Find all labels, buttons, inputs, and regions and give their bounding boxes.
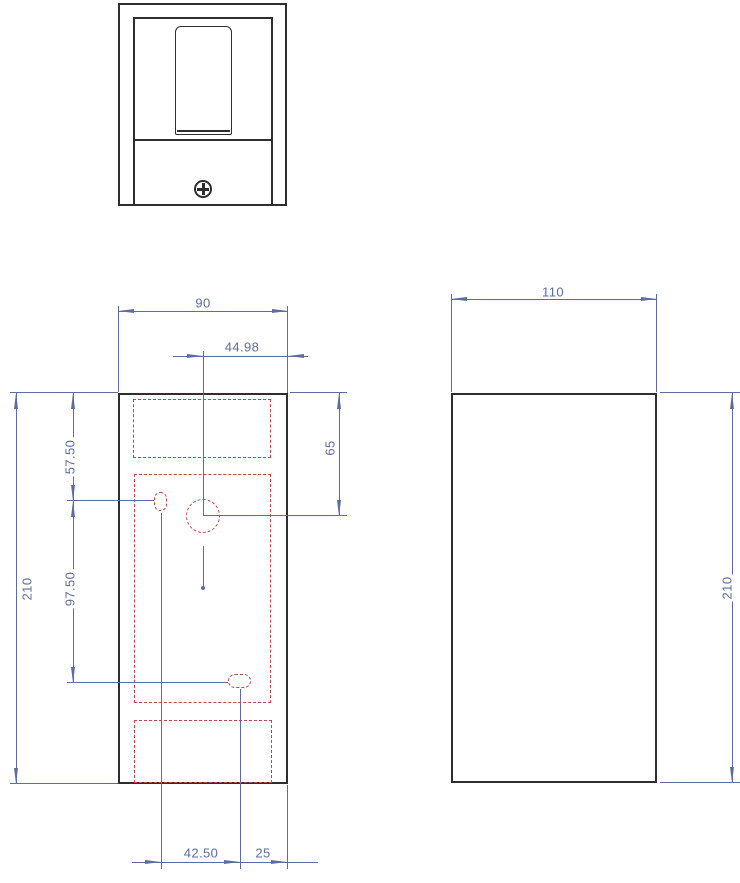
- top-view-inner-wall-top: [133, 17, 273, 19]
- dim-arrow: [730, 393, 734, 409]
- extension-line: [161, 513, 162, 869]
- dim-label-front-width: 90: [193, 297, 212, 310]
- dim-arrow: [224, 860, 240, 864]
- dim-arrow: [118, 309, 134, 313]
- extension-line: [67, 682, 228, 683]
- dim-line: [16, 393, 17, 784]
- lamp-window-outline: [175, 26, 232, 135]
- top-view-divider-line: [133, 139, 273, 141]
- mounting-slot-lower: [228, 674, 251, 688]
- extension-line: [10, 783, 118, 784]
- hidden-cavity-upper: [133, 399, 271, 458]
- extension-line: [204, 515, 347, 516]
- dim-line: [118, 311, 288, 312]
- dim-arrow: [641, 297, 657, 301]
- dim-arrow: [288, 354, 304, 358]
- dim-arrow: [145, 860, 161, 864]
- side-view-outline: [451, 393, 657, 783]
- hidden-cavity-lower: [134, 720, 272, 783]
- phillips-cross-v: [202, 183, 205, 195]
- top-view-inner-wall-left: [133, 17, 135, 206]
- dim-arrow: [187, 354, 203, 358]
- lamp-window-bottom-line: [177, 130, 230, 132]
- dim-arrow: [14, 393, 18, 409]
- extension-line: [203, 351, 204, 516]
- dim-arrow: [14, 768, 18, 784]
- dim-label-hole-offset: 44.98: [223, 341, 262, 354]
- extension-line: [656, 294, 657, 392]
- extension-line: [240, 689, 241, 869]
- top-view-inner-wall-right: [271, 17, 273, 206]
- extension-line: [451, 294, 452, 392]
- dim-label-top-to-slot: 57.50: [64, 438, 77, 477]
- center-mark-line: [203, 546, 204, 588]
- dim-label-height-right: 210: [721, 575, 734, 602]
- dim-arrow: [272, 309, 288, 313]
- center-mark-dot: [201, 586, 205, 590]
- dim-label-side-depth: 110: [540, 286, 566, 299]
- dim-arrow: [730, 767, 734, 783]
- dim-arrow: [71, 393, 75, 409]
- extension-line: [287, 785, 288, 869]
- dim-label-height-left: 210: [21, 576, 34, 603]
- dim-arrow: [71, 485, 75, 501]
- dim-label-top-to-hole: 65: [324, 438, 337, 457]
- dim-arrow: [337, 393, 341, 409]
- mounting-slot-upper: [154, 492, 167, 511]
- dim-arrow: [337, 500, 341, 516]
- extension-line: [10, 392, 118, 393]
- extension-line: [660, 782, 740, 783]
- dim-label-slot-to-right-edge: 25: [253, 847, 272, 860]
- dim-label-slot-offset-bottom: 42.50: [182, 847, 221, 860]
- dim-line: [339, 393, 340, 516]
- dim-arrow: [271, 860, 287, 864]
- dim-arrow: [71, 667, 75, 683]
- dim-label-slot-spacing: 97.50: [64, 570, 77, 609]
- extension-line: [67, 500, 154, 501]
- dim-arrow: [71, 501, 75, 517]
- extension-line: [118, 306, 119, 392]
- extension-line: [660, 392, 740, 393]
- dim-arrow: [451, 297, 467, 301]
- technical-drawing-sheet: 90 44.98 65 210 57.50 97.50: [0, 0, 740, 883]
